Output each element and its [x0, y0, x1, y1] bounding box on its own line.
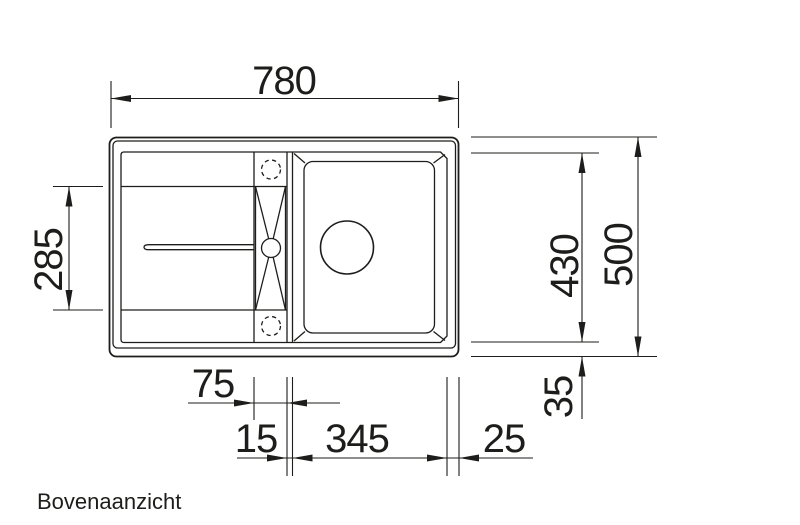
arrowhead-left — [293, 455, 313, 462]
drawing-caption: Bovenaanzicht — [37, 489, 181, 514]
dim-label-780: 780 — [252, 59, 316, 103]
tap-hole-bottom-dashed — [262, 317, 281, 336]
arrowhead-left — [111, 95, 131, 102]
arrowhead-down — [635, 337, 642, 357]
bowl-corner-tl — [294, 154, 305, 164]
arrowhead-up — [66, 187, 73, 207]
sink-technical-drawing: 780 285 430 500 35 75 — [0, 0, 800, 525]
dim-tap-strip-75: 75 — [188, 362, 340, 420]
dim-label-500: 500 — [597, 223, 641, 287]
sink-outer-edge — [110, 138, 459, 357]
drain-groove — [144, 245, 254, 250]
arrowhead-up — [635, 137, 642, 157]
arrowhead-up — [579, 153, 586, 173]
arrowhead-up — [579, 357, 586, 377]
arrowhead-left — [459, 455, 479, 462]
dim-label-345: 345 — [325, 417, 389, 461]
dim-rim-offset-35: 35 — [537, 357, 586, 420]
drawing-svg: 780 285 430 500 35 75 — [0, 0, 800, 525]
arrowhead-left — [287, 400, 307, 407]
bowl-corner-br — [434, 332, 446, 341]
arrowhead-down — [66, 290, 73, 310]
dim-label-75: 75 — [192, 362, 235, 406]
bowl-bottom-edge — [304, 162, 435, 334]
bowl-corner-bl — [294, 332, 305, 342]
bowl — [294, 154, 445, 342]
dim-label-285: 285 — [27, 228, 71, 292]
dim-label-35: 35 — [537, 376, 581, 419]
drain-circle — [321, 221, 374, 274]
dim-label-15: 15 — [235, 417, 278, 461]
sink-outline — [110, 138, 459, 357]
strip-center-hole — [262, 239, 281, 258]
arrowhead-right — [439, 95, 459, 102]
arrowhead-right — [427, 455, 447, 462]
dim-bottom-chain: 15 345 25 — [235, 377, 533, 476]
dim-label-25: 25 — [483, 417, 526, 461]
dim-drainboard-depth-285: 285 — [27, 187, 103, 311]
bowl-corner-tr — [434, 155, 446, 164]
dim-label-430: 430 — [543, 234, 587, 298]
arrowhead-right — [234, 400, 254, 407]
dim-overall-width-780: 780 — [111, 59, 459, 128]
arrowhead-down — [579, 322, 586, 342]
sink-opening-edge — [121, 152, 447, 343]
tap-hole-top-dashed — [262, 160, 281, 179]
tap-hole-strip — [256, 152, 293, 343]
dim-basin-depth-430: 430 — [471, 153, 599, 342]
